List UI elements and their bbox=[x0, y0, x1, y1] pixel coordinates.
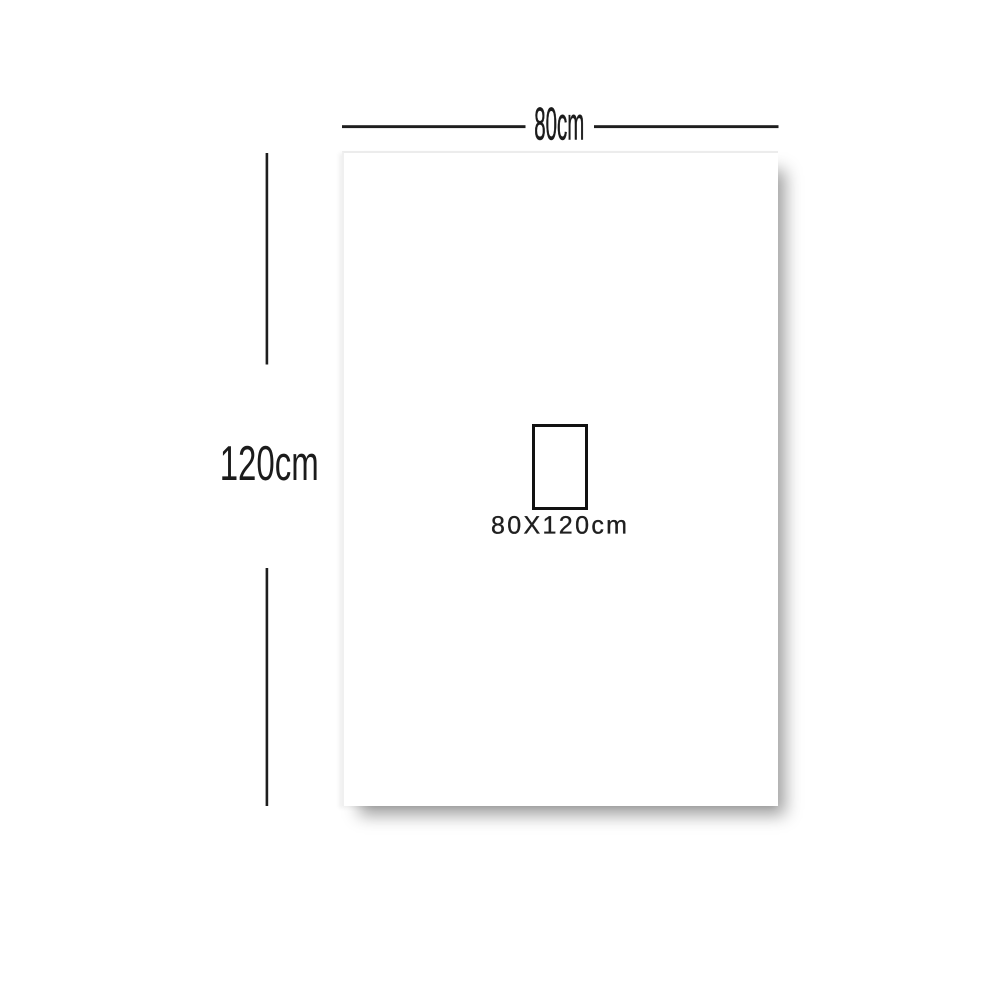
svg-text:80cm: 80cm bbox=[534, 98, 584, 150]
svg-text:80X120cm: 80X120cm bbox=[491, 512, 627, 540]
svg-text:120cm: 120cm bbox=[220, 437, 319, 491]
